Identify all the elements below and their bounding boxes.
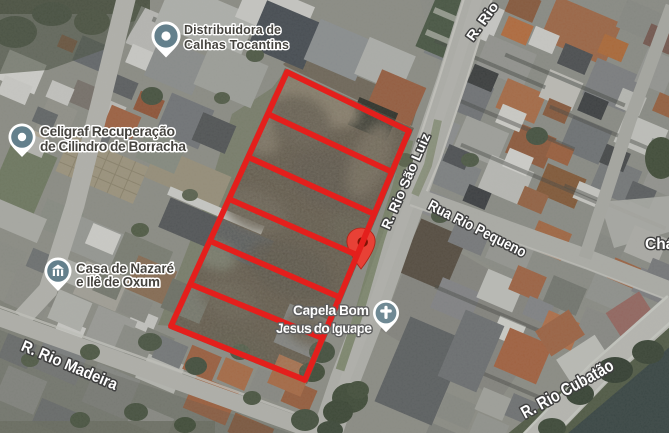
svg-text:Calhas Tocantins: Calhas Tocantins (184, 38, 289, 52)
svg-text:de Cilindro de Borracha: de Cilindro de Borracha (40, 138, 186, 154)
svg-text:Chá: Chá (645, 236, 669, 253)
svg-text:Jesus do Iguape: Jesus do Iguape (276, 320, 372, 336)
svg-text:Distribuidora de: Distribuidora de (184, 23, 281, 37)
svg-text:e Ilê de Oxum: e Ilê de Oxum (76, 275, 160, 290)
svg-text:Celigraf Recuperação: Celigraf Recuperação (40, 123, 175, 139)
svg-text:Capela Bom: Capela Bom (293, 302, 369, 318)
